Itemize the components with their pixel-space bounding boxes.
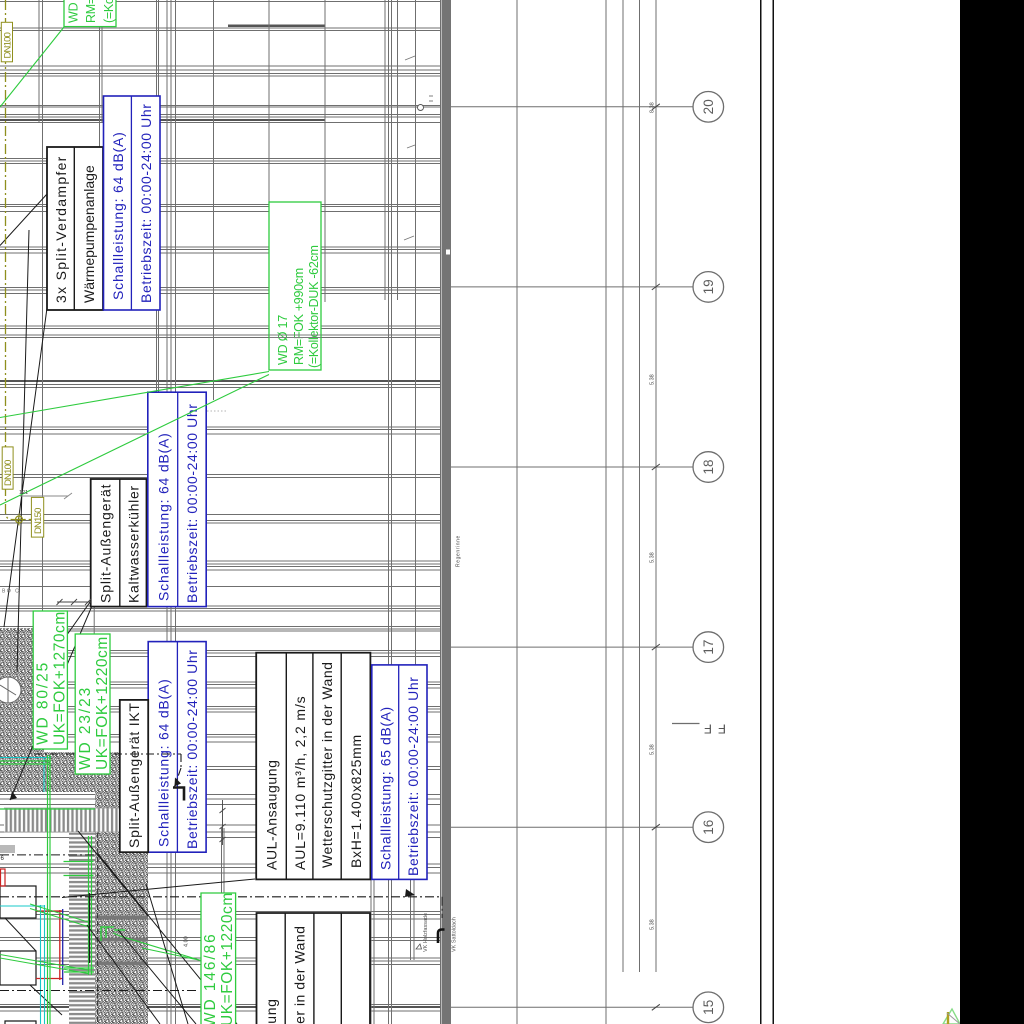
svg-text:UK=FOK+1220cm: UK=FOK+1220cm xyxy=(94,636,111,770)
svg-text:DN100: DN100 xyxy=(3,32,14,58)
svg-text:DN100: DN100 xyxy=(3,460,14,486)
svg-text:Regenrinne: Regenrinne xyxy=(456,535,462,567)
svg-text:20: 20 xyxy=(701,99,716,114)
svg-text:UK=FOK+1270cm: UK=FOK+1270cm xyxy=(52,611,69,745)
svg-text:DN150: DN150 xyxy=(33,508,44,534)
svg-text:5.38: 5.38 xyxy=(650,374,656,385)
svg-text:VK Sattoldach: VK Sattoldach xyxy=(451,917,457,952)
svg-text:WD Ø 17: WD Ø 17 xyxy=(276,315,290,365)
svg-text:RM=FOK +990cm: RM=FOK +990cm xyxy=(84,0,98,23)
svg-text:4.00: 4.00 xyxy=(184,936,190,947)
svg-text:5.38: 5.38 xyxy=(650,552,656,563)
svg-text:F: F xyxy=(718,722,726,737)
svg-text:F: F xyxy=(704,722,712,737)
svg-text:(=Kollektor-DUK -62cm: (=Kollektor-DUK -62cm xyxy=(102,0,116,23)
svg-text:RM=FOK +990cm: RM=FOK +990cm xyxy=(292,268,306,365)
svg-text:Betriebszeit: 00:00-24:00 Uhr: Betriebszeit: 00:00-24:00 Uhr xyxy=(184,649,200,849)
svg-text:(=Kollektor-DUK -62cm: (=Kollektor-DUK -62cm xyxy=(307,245,321,368)
svg-text:AUL-Ausblasung: AUL-Ausblasung xyxy=(263,999,279,1024)
svg-text:WD 146/86: WD 146/86 xyxy=(202,932,219,1024)
svg-text:Schallleistung: 64 dB(A): Schallleistung: 64 dB(A) xyxy=(110,131,126,300)
svg-text:BxH=1.400x825mm: BxH=1.400x825mm xyxy=(348,734,364,868)
svg-text:5.38: 5.38 xyxy=(650,744,656,755)
svg-text:19: 19 xyxy=(701,279,716,294)
svg-text:Kaltwasserkühler: Kaltwasserkühler xyxy=(126,485,142,603)
svg-text:BO C: BO C xyxy=(2,589,20,595)
svg-text:Betriebszeit: 00:00-24:00 Uhr: Betriebszeit: 00:00-24:00 Uhr xyxy=(138,103,154,303)
svg-text:121: 121 xyxy=(19,490,28,496)
svg-text:18: 18 xyxy=(701,459,716,474)
svg-text:Split-Außengerät: Split-Außengerät xyxy=(98,484,114,603)
svg-text:WD 80/25: WD 80/25 xyxy=(35,661,52,745)
svg-text:Split-Außengerät IKT: Split-Außengerät IKT xyxy=(126,702,142,848)
svg-text:5.38: 5.38 xyxy=(650,919,656,930)
svg-text:Betriebszeit: 00:00-24:00 Uhr: Betriebszeit: 00:00-24:00 Uhr xyxy=(405,676,421,876)
svg-text:Schallleistung: 64 dB(A): Schallleistung: 64 dB(A) xyxy=(156,678,172,847)
svg-text:UK=FOK+1220cm: UK=FOK+1220cm xyxy=(219,892,236,1024)
svg-text:VK Holzfassade: VK Holzfassade xyxy=(423,913,429,952)
svg-text:8.38: 8.38 xyxy=(650,102,656,113)
svg-text:AUL=9.110 m³/h, 2,2 m/s: AUL=9.110 m³/h, 2,2 m/s xyxy=(292,695,308,870)
svg-text:Wetterschutzgitter in der Wand: Wetterschutzgitter in der Wand xyxy=(319,662,335,868)
svg-text:WD 23/23: WD 23/23 xyxy=(77,686,94,770)
svg-text:16: 16 xyxy=(701,820,716,835)
svg-text:Betriebszeit: 00:00-24:00 Uhr: Betriebszeit: 00:00-24:00 Uhr xyxy=(184,403,200,603)
svg-text:Wärmepumpenanlage: Wärmepumpenanlage xyxy=(81,165,97,303)
svg-text:17: 17 xyxy=(701,640,716,655)
svg-text:WD Ø 17: WD Ø 17 xyxy=(67,0,81,23)
svg-text:Wetterschutzgitter in der Wand: Wetterschutzgitter in der Wand xyxy=(292,926,308,1024)
svg-text:Schallleistung: 65 dB(A): Schallleistung: 65 dB(A) xyxy=(378,706,394,870)
svg-text:15: 15 xyxy=(701,1000,716,1015)
svg-text:3x Split-Verdampfer: 3x Split-Verdampfer xyxy=(53,155,69,303)
svg-text:Schallleistung: 64 dB(A): Schallleistung: 64 dB(A) xyxy=(156,432,172,601)
svg-text:AUL-Ansaugung: AUL-Ansaugung xyxy=(264,759,280,870)
